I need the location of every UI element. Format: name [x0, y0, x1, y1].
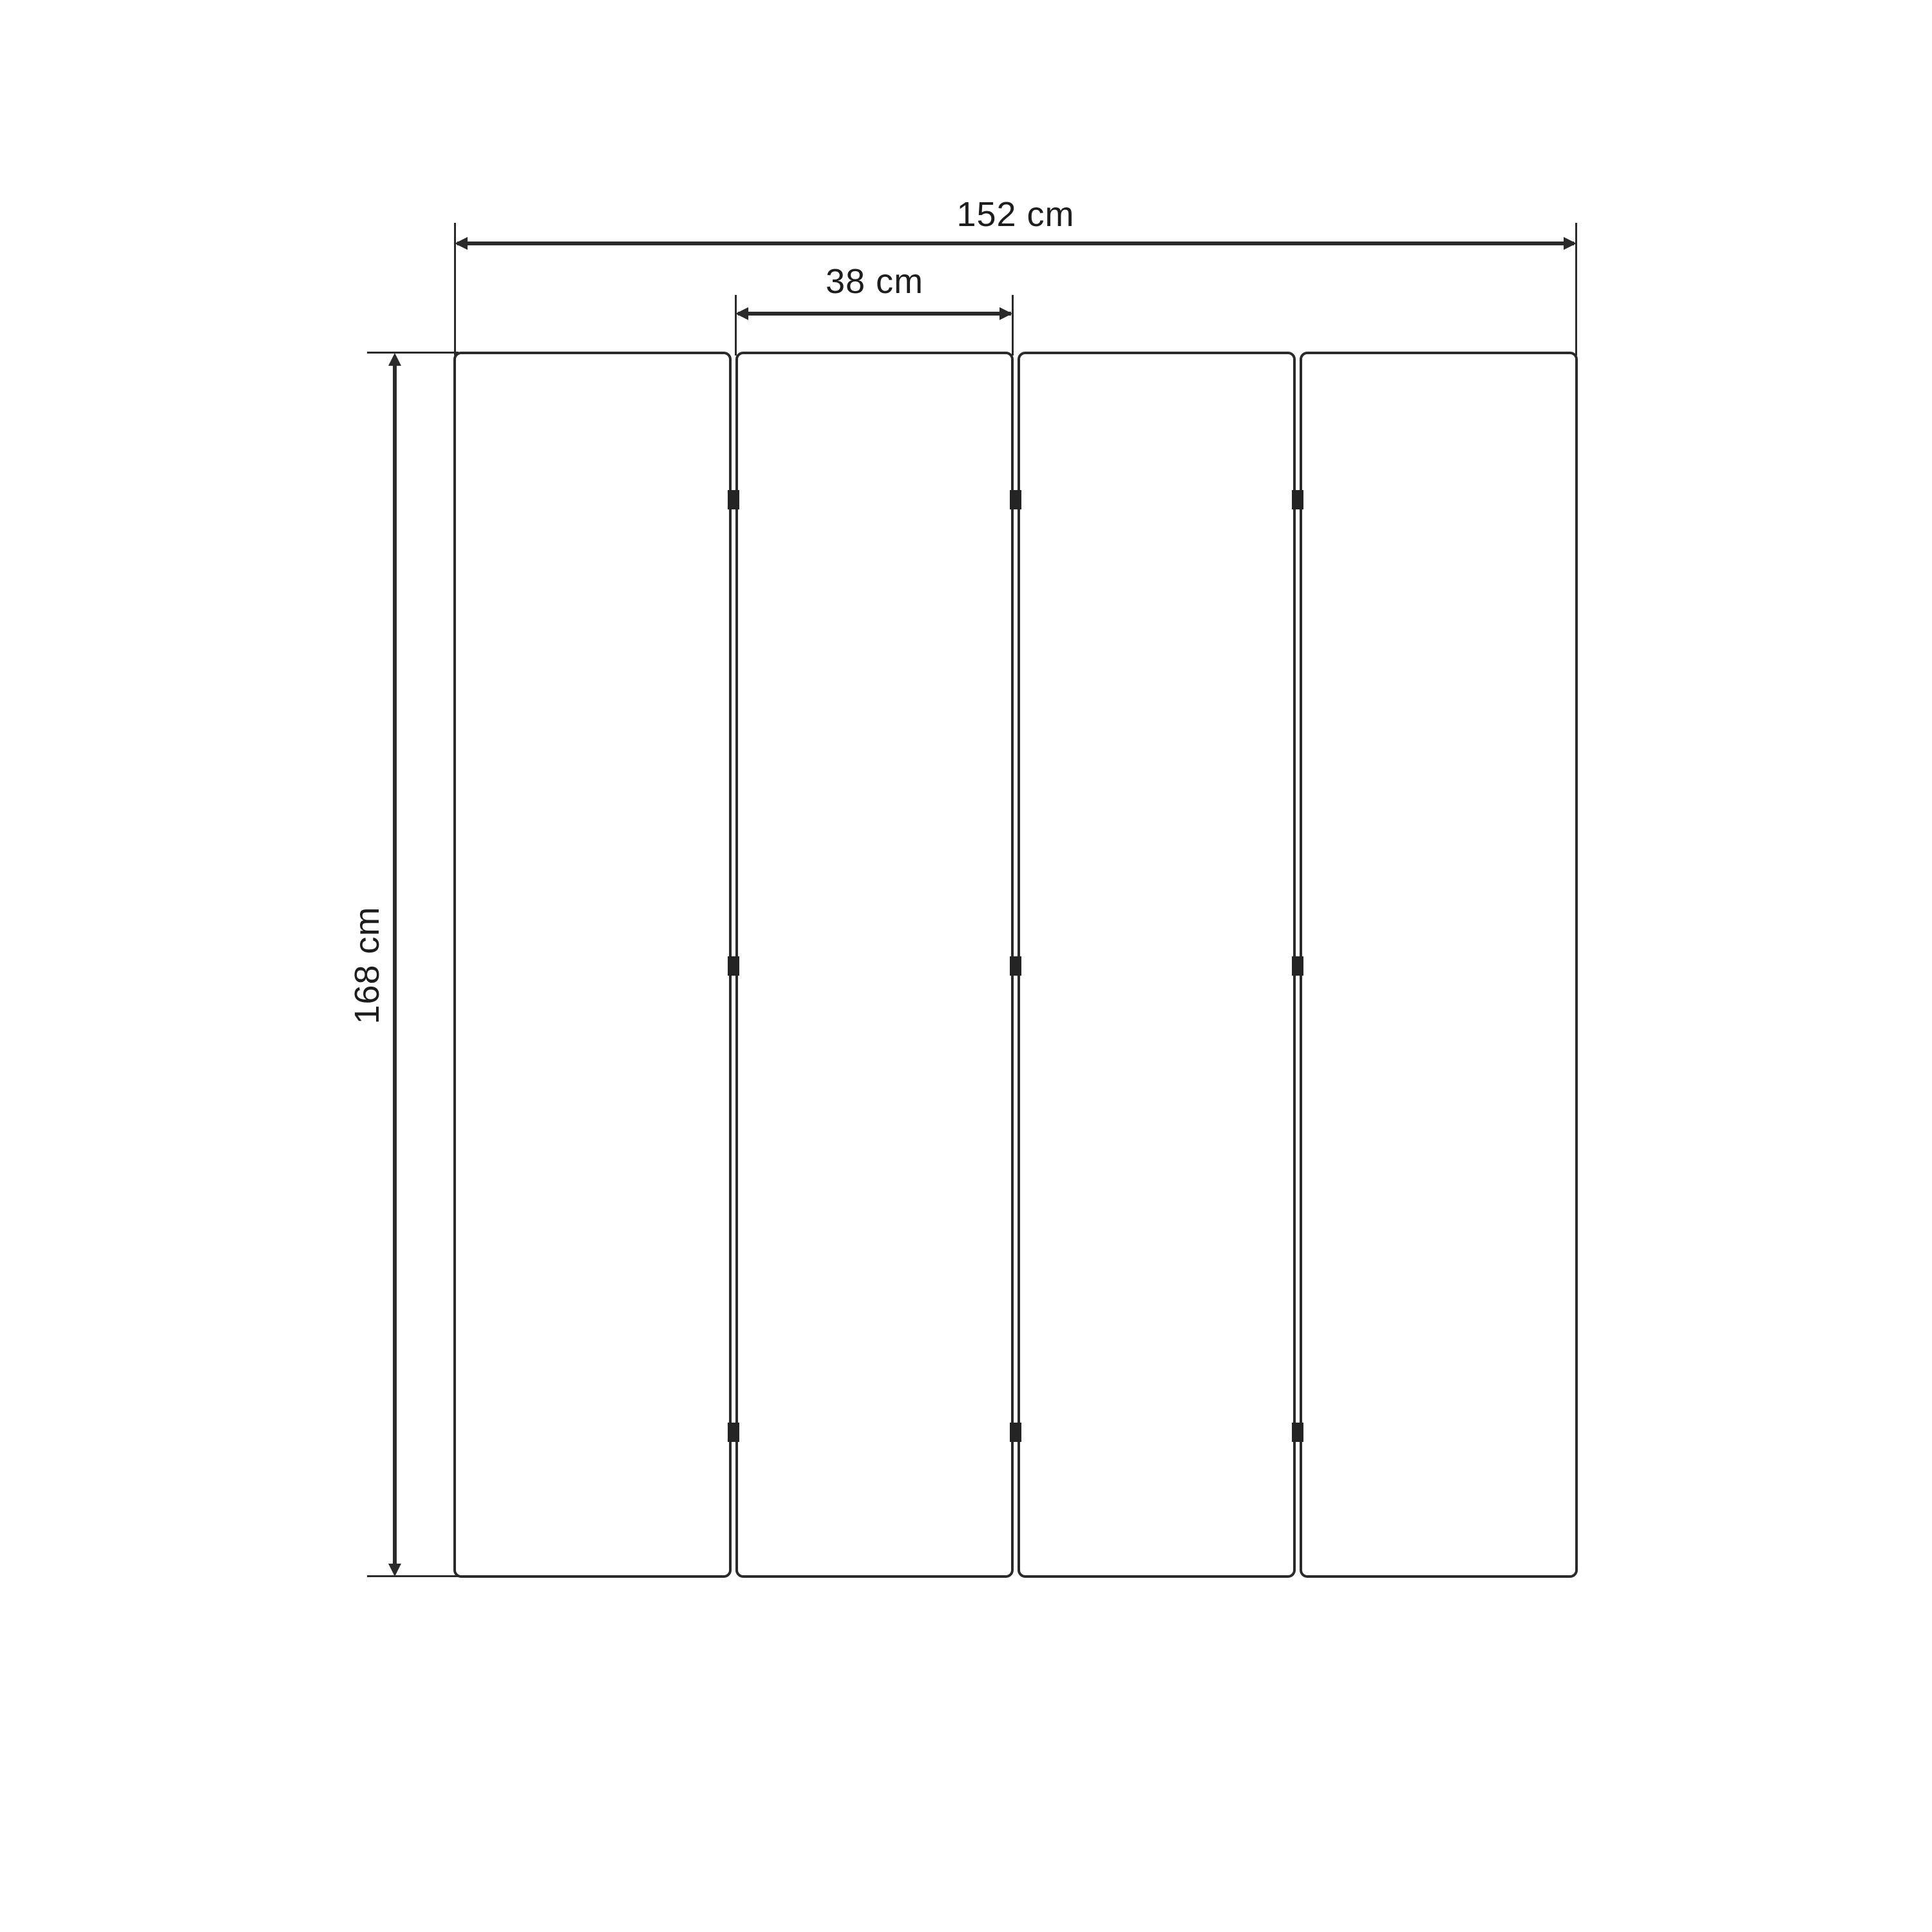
divider-panel-3 [1018, 352, 1296, 1578]
hinge-mark [1010, 490, 1021, 509]
extension-line-right [1012, 295, 1014, 355]
total-width-label: 152 cm [887, 196, 1144, 232]
arrowhead-up-icon [388, 353, 401, 366]
arrowhead-right-icon [1564, 237, 1577, 250]
dimension-line [393, 365, 397, 1565]
arrowhead-down-icon [388, 1564, 401, 1577]
hinge-mark [1292, 956, 1303, 976]
dimension-line [738, 312, 1011, 316]
hinge-mark [728, 490, 739, 509]
divider-panel-2 [735, 352, 1014, 1578]
hinge-mark [1292, 1423, 1303, 1442]
divider-panel-4 [1300, 352, 1578, 1578]
dimension-line [457, 241, 1574, 245]
hinge-mark [1010, 956, 1021, 976]
extension-line-top [367, 352, 459, 354]
hinge-mark [1010, 1423, 1021, 1442]
height-label: 168 cm [349, 869, 385, 1062]
arrowhead-right-icon [999, 307, 1012, 320]
extension-line-left [735, 295, 737, 355]
hinge-mark [1292, 490, 1303, 509]
extension-line-bottom [367, 1575, 459, 1577]
dimension-diagram: 152 cm 38 cm 168 cm [0, 0, 1932, 1932]
arrowhead-left-icon [455, 237, 468, 250]
arrowhead-left-icon [735, 307, 748, 320]
hinge-mark [728, 1423, 739, 1442]
hinge-mark [728, 956, 739, 976]
divider-panel-1 [453, 352, 732, 1578]
panel-width-label: 38 cm [778, 263, 971, 299]
